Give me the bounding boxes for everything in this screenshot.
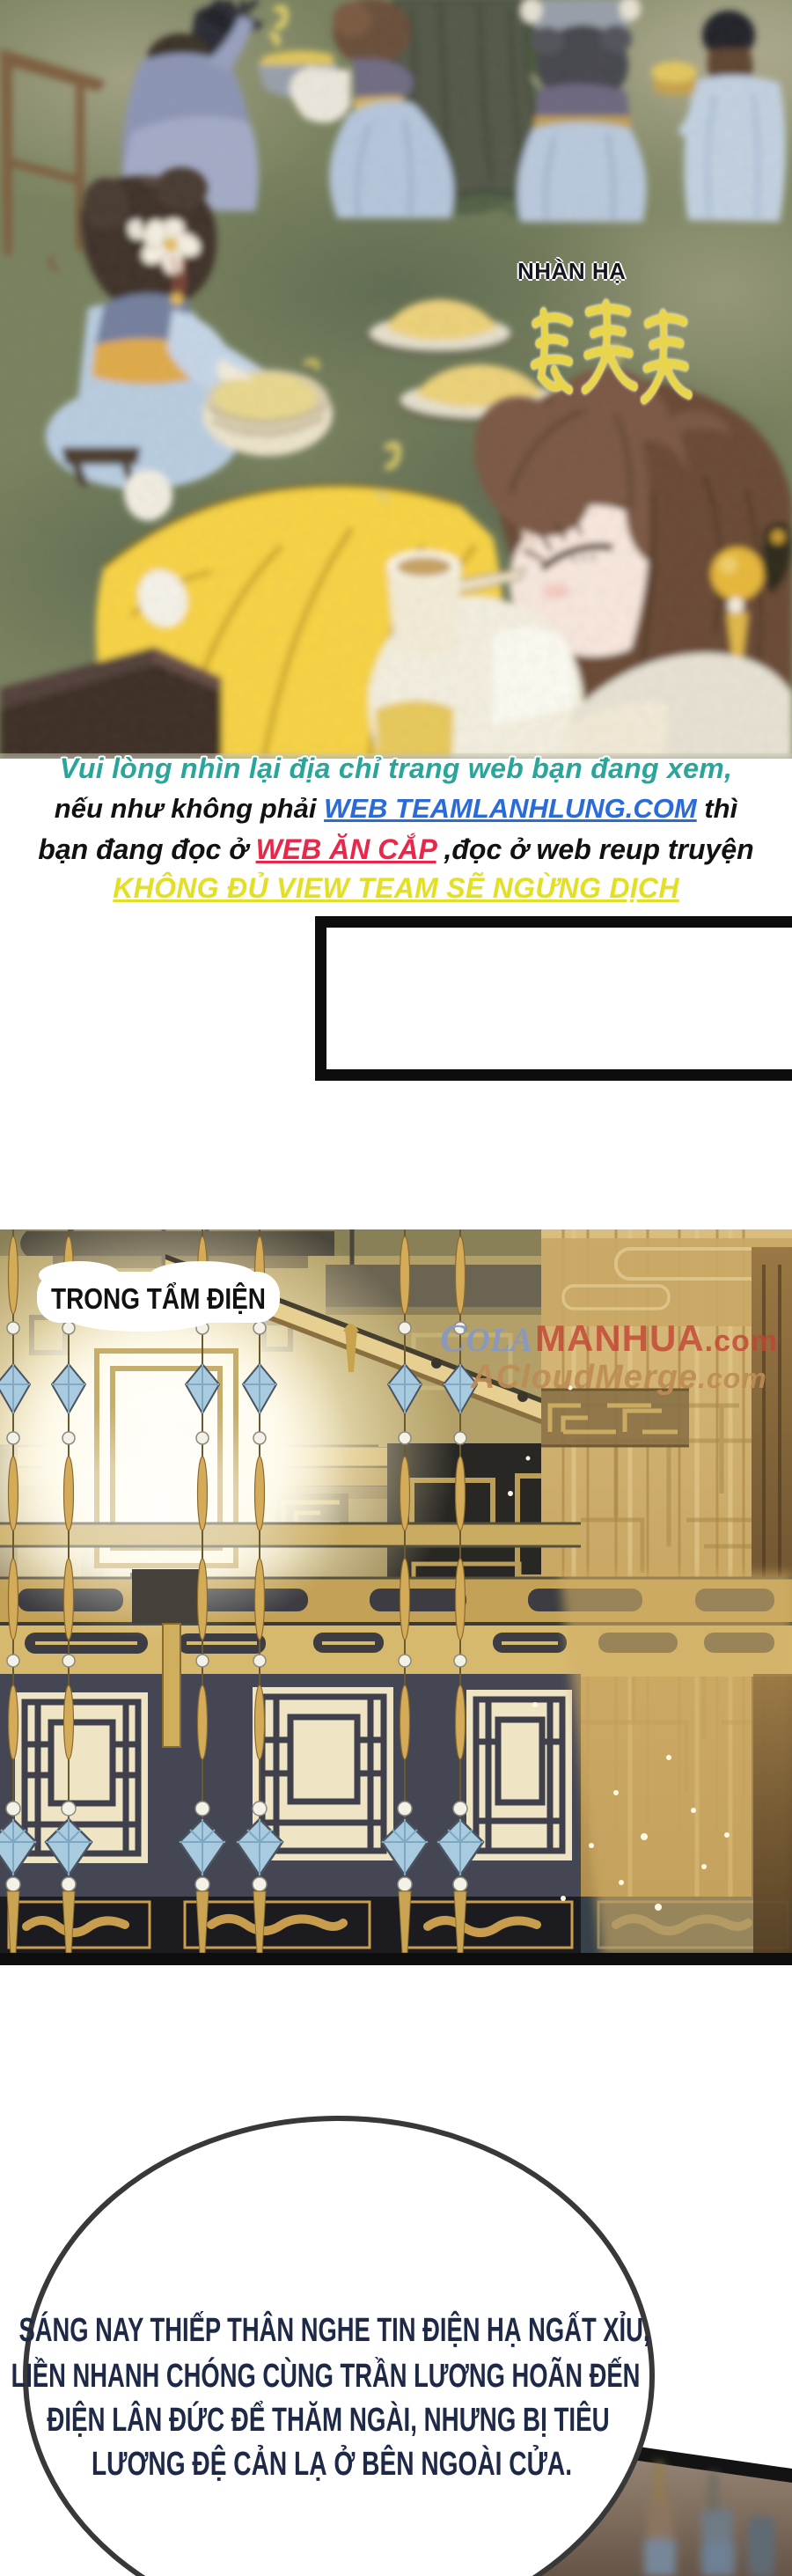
svg-text:MANHUA.com: MANHUA.com	[535, 1317, 778, 1359]
svg-text:COLA: COLA	[440, 1317, 532, 1360]
svg-text:ACloudMerge.com: ACloudMerge.com	[470, 1359, 767, 1396]
svg-text:TRONG TẨM ĐIỆN: TRONG TẨM ĐIỆN	[51, 1282, 266, 1315]
